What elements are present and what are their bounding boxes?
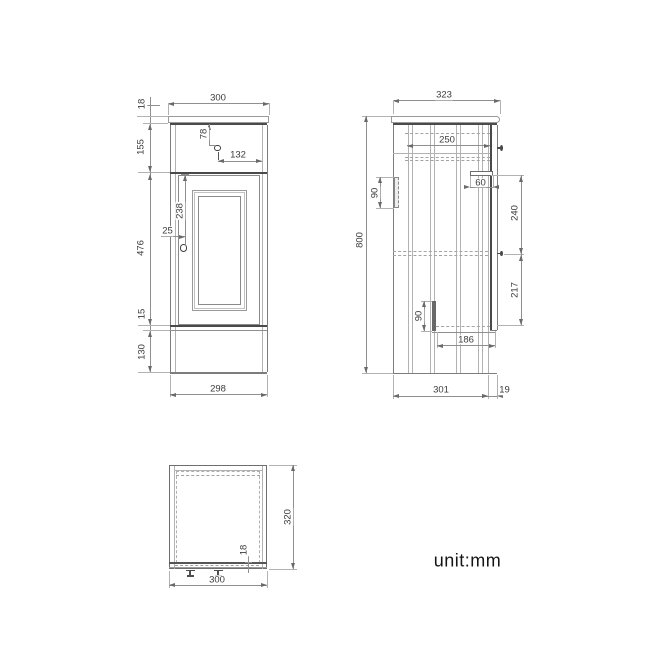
dim-front-doorknob-in: 25	[161, 226, 174, 236]
dim-side-upper-bracket: 90	[370, 186, 380, 199]
side-door-front	[497, 125, 498, 331]
dim-arrowhead	[291, 563, 295, 569]
drawing-line	[488, 396, 496, 397]
dim-side-top-depth: 323	[435, 90, 453, 100]
dim-arrowhead	[519, 176, 523, 182]
drawing-line	[245, 562, 252, 563]
dim-arrowhead	[484, 144, 490, 148]
drawing-line	[170, 394, 267, 395]
drawing-line	[430, 125, 431, 373]
dim-arrowhead	[148, 124, 152, 130]
dim-arrowhead	[218, 159, 224, 163]
dim-arrowhead	[422, 325, 426, 331]
dim-arrowhead	[407, 144, 413, 148]
drawing-line	[362, 373, 393, 374]
dim-side-shelf-span: 186	[457, 335, 475, 345]
dim-front-counter-thickness: 18	[137, 97, 147, 110]
drawing-line	[175, 125, 176, 373]
dim-arrowhead	[493, 185, 499, 189]
drawing-line	[432, 332, 495, 333]
dim-plan-width: 300	[208, 575, 226, 585]
dim-arrowhead	[364, 367, 368, 373]
side-countertop	[391, 116, 500, 123]
dim-front-top-width: 300	[209, 93, 227, 103]
dim-side-door-thickness: 19	[498, 385, 511, 395]
dim-front-bottom-rail: 15	[137, 307, 147, 320]
dim-side-lower-bracket: 90	[414, 309, 424, 322]
dim-arrowhead	[519, 255, 523, 261]
hidden-line	[405, 157, 490, 158]
drawing-line	[138, 372, 170, 373]
dim-arrowhead	[482, 394, 488, 398]
drawing-line	[500, 145, 503, 151]
dim-arrowhead	[261, 393, 267, 397]
dim-front-doorknob-down: 238	[175, 202, 185, 220]
drawing-line	[170, 125, 171, 373]
drawing-line	[262, 125, 263, 373]
dim-arrowhead	[364, 116, 368, 122]
drawing-line	[170, 123, 267, 125]
drawing-line	[150, 97, 151, 172]
drawing-line	[143, 330, 170, 331]
dim-plan-front-thickness: 18	[239, 544, 249, 557]
drawing-line	[393, 125, 394, 373]
side-door-back	[490, 125, 492, 331]
hidden-line	[393, 255, 488, 256]
drawing-line	[146, 105, 160, 106]
drawing-line	[269, 569, 297, 570]
drawing-line	[138, 325, 170, 326]
dim-front-upper-height: 155	[136, 138, 146, 156]
dim-arrowhead	[437, 344, 443, 348]
dim-arrowhead	[148, 174, 152, 180]
upper-bracket	[394, 177, 399, 208]
dim-side-lower-span: 217	[510, 281, 520, 299]
drawing-line	[482, 125, 483, 373]
drawing-line	[393, 100, 500, 101]
drawing-line	[187, 575, 194, 577]
drawing-line	[393, 373, 497, 375]
dim-front-door-height: 476	[136, 239, 146, 257]
drawing-line	[209, 145, 215, 146]
dim-arrowhead	[464, 185, 470, 189]
dim-arrowhead	[489, 344, 495, 348]
drawing-line	[267, 125, 268, 373]
drawing-line	[170, 372, 267, 374]
drawing-line	[407, 145, 490, 146]
drawing-line	[267, 375, 268, 397]
dim-arrowhead	[378, 202, 382, 208]
drawing-line	[376, 208, 394, 209]
drawer-knob	[214, 145, 221, 152]
hidden-line	[405, 160, 490, 161]
dim-arrowhead	[291, 465, 295, 471]
dim-arrowhead	[256, 159, 262, 163]
dim-arrowhead	[422, 301, 426, 307]
drawing-line	[488, 125, 489, 373]
drawing-line	[138, 172, 170, 173]
drawing-line	[412, 125, 413, 373]
dim-front-plinth-height: 130	[137, 343, 147, 361]
drawing-line	[143, 123, 168, 124]
dim-arrowhead	[519, 248, 523, 254]
drawing-line	[366, 116, 367, 373]
door-panel-inner	[198, 196, 241, 305]
dim-arrowhead	[170, 393, 176, 397]
drawing-line	[497, 325, 524, 326]
drawing-line	[170, 325, 267, 327]
drawing-line	[269, 103, 270, 115]
door-knob	[180, 244, 187, 251]
hidden-line	[436, 326, 490, 327]
dim-side-drawer-depth: 250	[438, 135, 456, 145]
dim-side-overall-height: 800	[355, 231, 365, 249]
dim-arrowhead	[169, 583, 175, 587]
drawing-line	[150, 172, 151, 373]
drawing-line	[500, 100, 501, 114]
drawing-line	[478, 125, 479, 373]
drawing-line	[421, 331, 432, 332]
drawing-line	[393, 396, 488, 397]
drawing-canvas: 300 18 155 476 15 130 78 132 238	[0, 0, 650, 650]
drawing-line	[495, 331, 496, 348]
hidden-line	[176, 475, 260, 476]
dim-arrowhead	[148, 331, 152, 337]
drawing-line	[267, 571, 268, 588]
drawing-line	[248, 554, 249, 573]
lower-bracket	[432, 301, 437, 331]
drawing-line	[393, 100, 394, 114]
drawer-runner	[470, 171, 493, 176]
drawing-line	[174, 466, 175, 569]
drawing-line	[170, 330, 267, 331]
hidden-line	[175, 565, 259, 566]
dim-front-knob-right: 132	[229, 150, 247, 160]
dim-side-runner: 60	[474, 178, 487, 188]
drawing-line	[185, 236, 186, 244]
dim-side-body-depth: 301	[432, 385, 450, 395]
dim-arrowhead	[519, 319, 523, 325]
dim-arrowhead	[261, 583, 267, 587]
drawing-line	[437, 345, 496, 346]
unit-note: unit:mm	[434, 550, 502, 571]
drawing-line	[434, 125, 435, 373]
dim-arrowhead	[183, 175, 187, 181]
drawing-line	[293, 465, 294, 569]
drawing-line	[168, 103, 169, 115]
drawing-line	[168, 103, 269, 104]
hidden-shelf-line	[393, 251, 488, 252]
drawing-line	[408, 125, 409, 373]
drawing-line	[262, 466, 263, 569]
dim-front-body-width: 298	[209, 384, 227, 394]
dim-plan-depth: 320	[283, 508, 293, 526]
dim-side-upper-span: 240	[510, 204, 520, 222]
dim-arrowhead	[393, 394, 399, 398]
dim-front-knob-down: 78	[199, 128, 209, 141]
dim-arrowhead	[378, 177, 382, 183]
drawing-line	[393, 153, 490, 154]
drawing-line	[245, 567, 252, 568]
drawing-line	[137, 116, 168, 117]
